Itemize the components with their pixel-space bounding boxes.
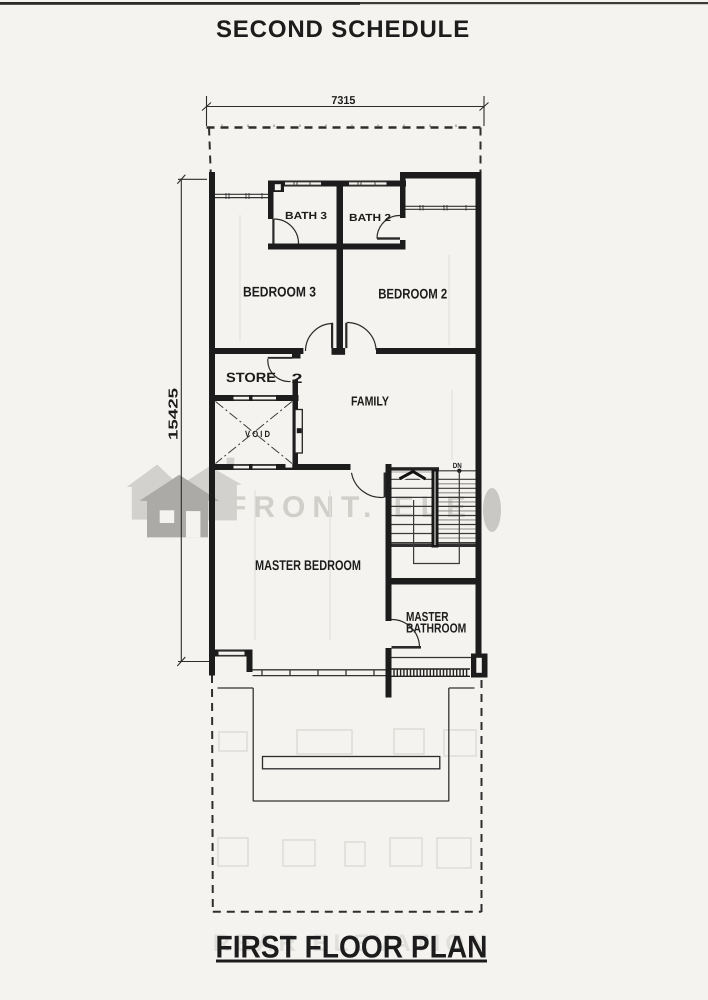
svg-text:BEDROOM 2: BEDROOM 2 xyxy=(378,286,447,302)
svg-text:BATH 2: BATH 2 xyxy=(349,213,391,224)
svg-text:V O I D: V O I D xyxy=(245,429,270,439)
svg-text:15425: 15425 xyxy=(165,388,180,440)
svg-text:SECOND SCHEDULE: SECOND SCHEDULE xyxy=(216,16,470,43)
svg-text:BEDROOM 3: BEDROOM 3 xyxy=(243,284,316,300)
svg-text:FIRST FLOOR PLAN: FIRST FLOOR PLAN xyxy=(216,929,488,965)
svg-text:STORE: STORE xyxy=(226,370,276,385)
svg-text:7315: 7315 xyxy=(331,95,356,107)
svg-text:2: 2 xyxy=(292,371,303,386)
svg-text:FAMILY: FAMILY xyxy=(351,394,389,409)
svg-text:BATH 3: BATH 3 xyxy=(285,211,327,222)
svg-text:BATHROOM: BATHROOM xyxy=(406,620,466,635)
svg-text:DN: DN xyxy=(453,461,462,470)
svg-text:MASTER BEDROOM: MASTER BEDROOM xyxy=(255,557,361,573)
